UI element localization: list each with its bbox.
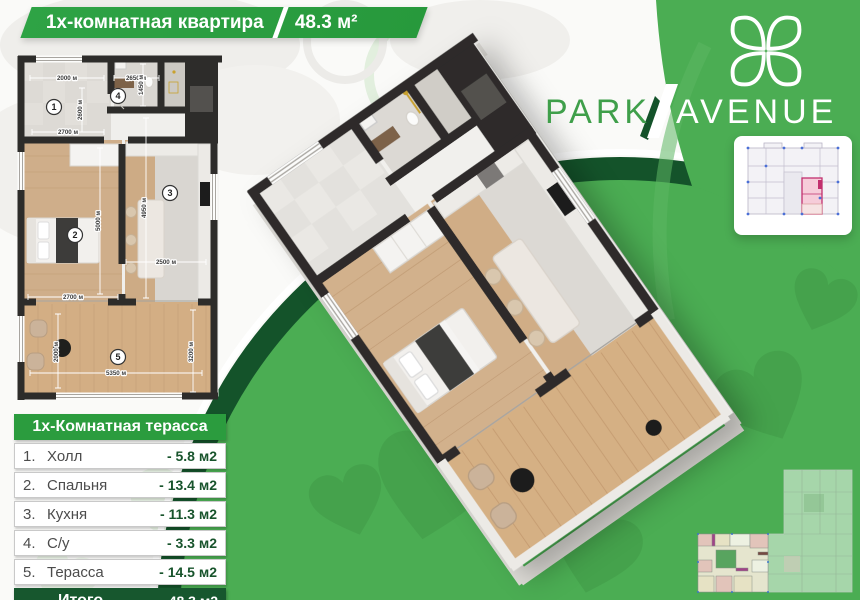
legend-room-name: С/у bbox=[47, 535, 167, 552]
legend-row-number: 3. bbox=[23, 506, 47, 523]
dim-label: 2000 м bbox=[57, 75, 77, 82]
logo-slash bbox=[647, 84, 678, 138]
dim-label: 5350 м bbox=[106, 370, 126, 377]
siteplan-drawing bbox=[692, 464, 860, 600]
dim-label: 3200 м bbox=[188, 342, 195, 362]
dim-label: 5000 м bbox=[95, 211, 102, 231]
dim-label: 2700 м bbox=[63, 294, 83, 301]
apartment-poster: 2000 м 2650 м 2600 м 1450 м 2700 м 4950 … bbox=[0, 0, 860, 600]
legend-row-number: 5. bbox=[23, 564, 47, 581]
legend-header: 1х-Комнатная терасса bbox=[14, 414, 226, 440]
keyplan-drawing bbox=[734, 136, 852, 235]
legend-total-label: Итого bbox=[58, 592, 160, 600]
dim-label: 2700 м bbox=[58, 129, 78, 136]
apartment-area-label: 48.3 м² bbox=[295, 12, 358, 34]
legend-row-number: 2. bbox=[23, 477, 47, 494]
legend-room-area: - 13.4 м2 bbox=[159, 477, 217, 493]
legend-row-terrace: 5. Терасса - 14.5 м2 bbox=[14, 559, 226, 585]
svg-text:4: 4 bbox=[115, 91, 120, 101]
legend-row-number: 1. bbox=[23, 448, 47, 465]
logo-word-avenue: AVENUE bbox=[676, 93, 837, 132]
bathroom-3d bbox=[357, 87, 428, 152]
legend-row-number: 4. bbox=[23, 535, 47, 552]
legend-row-hall: 1. Холл - 5.8 м2 bbox=[14, 443, 226, 469]
svg-text:5: 5 bbox=[115, 352, 120, 362]
room-number-2: 2 bbox=[68, 228, 83, 243]
room-number-5: 5 bbox=[111, 350, 126, 365]
keyplan-card bbox=[734, 136, 852, 235]
bed-3d bbox=[383, 308, 497, 414]
legend-room-name: Терасса bbox=[47, 564, 159, 581]
logo-leaf-icon bbox=[727, 12, 805, 90]
legend-total-area: - 48.3 м2 bbox=[160, 593, 218, 600]
room-number-4: 4 bbox=[111, 89, 126, 104]
legend-room-name: Спальня bbox=[47, 477, 159, 494]
apartment-type-label: 1х-комнатная квартира bbox=[46, 12, 264, 34]
room-number-1: 1 bbox=[47, 100, 62, 115]
legend-room-name: Холл bbox=[47, 448, 167, 465]
floor-plan-2d: 2000 м 2650 м 2600 м 1450 м 2700 м 4950 … bbox=[14, 52, 226, 404]
title-banner: 1х-комнатная квартира 48.3 м² bbox=[20, 7, 427, 38]
legend-row-bedroom: 2. Спальня - 13.4 м2 bbox=[14, 472, 226, 498]
dim-label: 4950 м bbox=[141, 198, 148, 218]
logo-word-park: PARK bbox=[545, 93, 645, 132]
svg-text:1: 1 bbox=[51, 102, 56, 112]
legend-room-name: Кухня bbox=[47, 506, 160, 523]
legend-row-bathroom: 4. С/у - 3.3 м2 bbox=[14, 530, 226, 556]
room-number-3: 3 bbox=[163, 186, 178, 201]
render-wall-extrusion bbox=[256, 45, 748, 583]
dim-label: 2000 м bbox=[53, 342, 60, 362]
svg-text:3: 3 bbox=[167, 188, 172, 198]
terrace-furniture-3d bbox=[462, 366, 665, 541]
legend-room-area: - 3.3 м2 bbox=[167, 535, 217, 551]
dim-label: 2500 м bbox=[156, 259, 176, 266]
dim-label: 2600 м bbox=[77, 100, 84, 120]
legend-table: 1х-Комнатная терасса 1. Холл - 5.8 м2 2.… bbox=[14, 414, 226, 600]
svg-text:2: 2 bbox=[72, 230, 77, 240]
siteplan-colored-building bbox=[698, 534, 768, 592]
legend-row-kitchen: 3. Кухня - 11.3 м2 bbox=[14, 501, 226, 527]
render-apartment bbox=[247, 33, 737, 568]
wardrobe-3d bbox=[373, 210, 445, 273]
legend-room-area: - 11.3 м2 bbox=[160, 506, 217, 522]
dim-label: 1450 м bbox=[138, 75, 145, 95]
kitchen-3d bbox=[432, 137, 649, 378]
legend-room-area: - 14.5 м2 bbox=[159, 564, 217, 580]
banner-slash-divider bbox=[272, 7, 288, 38]
legend-room-area: - 5.8 м2 bbox=[167, 448, 217, 464]
legend-total-row: Итого - 48.3 м2 bbox=[14, 588, 226, 600]
